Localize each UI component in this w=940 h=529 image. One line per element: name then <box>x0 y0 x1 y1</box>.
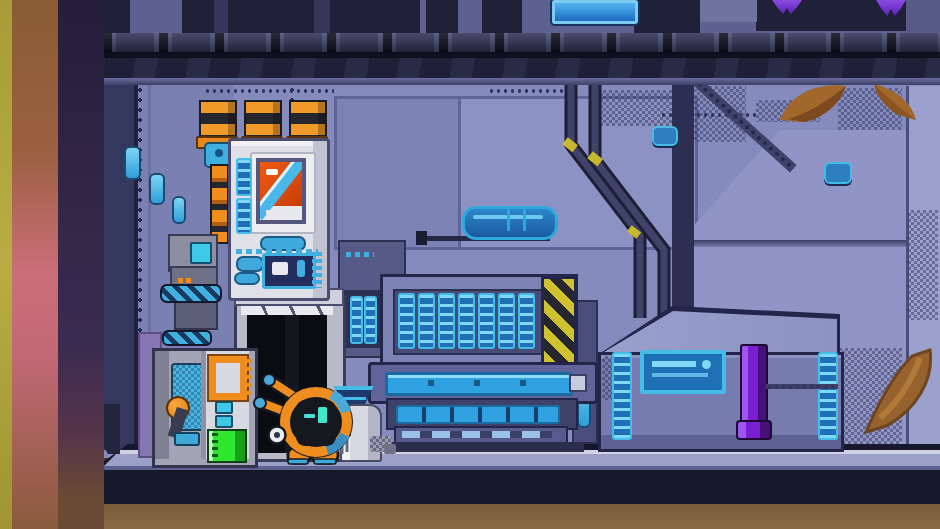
striped-vent-1 <box>160 284 222 303</box>
ceiling-dark-4 <box>482 0 522 33</box>
console-button-pill-2[interactable] <box>234 272 260 285</box>
cabinet-orange-bracket <box>209 356 247 400</box>
wall-light-capsule-3 <box>172 196 186 224</box>
console-mini-display[interactable] <box>262 253 316 289</box>
vent-slat-3 <box>438 293 455 349</box>
screen-bottom-bar <box>266 210 294 214</box>
ceiling-slat-band <box>0 58 940 78</box>
mini-display-bar <box>297 260 305 277</box>
glow-dark-column <box>58 0 104 529</box>
machine-plinth <box>376 442 584 452</box>
debris-chunk <box>384 444 396 454</box>
robot-antenna-1 <box>263 374 294 396</box>
glow-olive-column <box>0 0 12 529</box>
screen-white-dash <box>266 169 278 175</box>
console-fins <box>312 252 322 288</box>
ceiling-right-panel <box>906 0 940 33</box>
ceiling <box>0 0 940 85</box>
ceiling-dark-3 <box>426 0 458 33</box>
gauge-ticks <box>212 433 218 457</box>
blue-blob-rivet-2 <box>824 162 852 184</box>
wall-light-capsule-1 <box>124 146 141 180</box>
light-bar-strip <box>385 372 573 396</box>
tank-divider-2 <box>523 209 526 231</box>
cabinet-button-1[interactable] <box>215 401 233 414</box>
thin-pipe-plug <box>416 231 427 245</box>
orange-standpipe <box>210 164 229 244</box>
glow-pink-column <box>12 0 58 529</box>
back-vent-bar-1 <box>350 296 363 344</box>
ceiling-col-1 <box>214 0 228 33</box>
wall-right-seam <box>694 240 940 247</box>
purple-lever-cap[interactable] <box>736 420 772 440</box>
valve-center <box>215 149 223 157</box>
hazard-stripe-column <box>541 276 577 366</box>
wall-left-column <box>104 85 138 450</box>
robot-eye-dash <box>304 414 315 418</box>
crate-strip-right <box>818 352 838 440</box>
robot-character[interactable] <box>250 374 358 474</box>
vent-slat-4 <box>458 293 475 349</box>
purple-lever[interactable] <box>740 344 768 430</box>
rust-horn <box>850 346 934 434</box>
rivet-row-1 <box>204 88 334 95</box>
console-slat-2 <box>236 198 252 234</box>
label-dot <box>702 360 711 369</box>
coolant-tank <box>462 206 558 240</box>
vent-slat-1 <box>398 293 415 349</box>
back-vent-bar-2 <box>364 296 377 344</box>
console-screen[interactable] <box>260 162 302 220</box>
crate-seam <box>766 384 838 389</box>
rust-swoosh-right <box>872 82 920 122</box>
vent-slat-6 <box>498 293 515 349</box>
cabinet-button-2[interactable] <box>215 415 233 428</box>
label-line-2 <box>652 373 708 377</box>
ceiling-light-panel <box>700 0 757 22</box>
strip-ticks <box>388 380 564 386</box>
light-bar-cap <box>569 374 587 392</box>
green-gauge <box>207 429 247 463</box>
vent-machine <box>380 274 578 368</box>
striped-vent-2 <box>162 330 212 346</box>
joint-orange-dot-2 <box>186 278 191 283</box>
left-glow-strip <box>0 0 104 529</box>
robot-face <box>296 400 336 446</box>
wall-light-capsule-2 <box>149 173 165 205</box>
wall-panel-a <box>334 96 464 250</box>
vent-slat-5 <box>478 293 495 349</box>
robot-badge-glyph <box>274 432 280 438</box>
mid-bar-strip <box>396 405 560 424</box>
ceiling-col-2 <box>314 0 330 33</box>
vent-slat-7 <box>518 293 535 349</box>
game-viewport[interactable] <box>0 0 940 529</box>
ceiling-dark-5 <box>634 0 700 33</box>
rust-swoosh-left <box>778 82 848 124</box>
crate-label-plate <box>640 350 726 394</box>
joint-cyan-button[interactable] <box>190 242 212 264</box>
cabinet-arm-cuff <box>174 432 200 446</box>
ceiling-dark-1 <box>104 0 130 33</box>
back-panel-dashes <box>346 252 374 257</box>
mini-display-glyph <box>272 262 288 275</box>
console-slat-1 <box>236 158 252 196</box>
dither-patch-5 <box>908 210 938 320</box>
console-button-pill-1[interactable] <box>236 256 264 272</box>
joint-orange-dot-1 <box>178 278 183 283</box>
vent-slat-2 <box>418 293 435 349</box>
robot-antenna-2 <box>254 397 286 412</box>
ceiling-track-band <box>0 33 940 52</box>
tank-divider-1 <box>507 209 510 231</box>
ceiling-sign <box>552 0 638 24</box>
crate-dither-edge <box>602 356 612 400</box>
robot-eye-rect <box>318 407 327 423</box>
ceiling-edge <box>0 78 940 85</box>
label-line-1 <box>652 361 696 367</box>
low-bar-dashes <box>402 431 552 438</box>
crate-strip-left <box>612 352 632 440</box>
cabinet-divider <box>201 351 206 459</box>
